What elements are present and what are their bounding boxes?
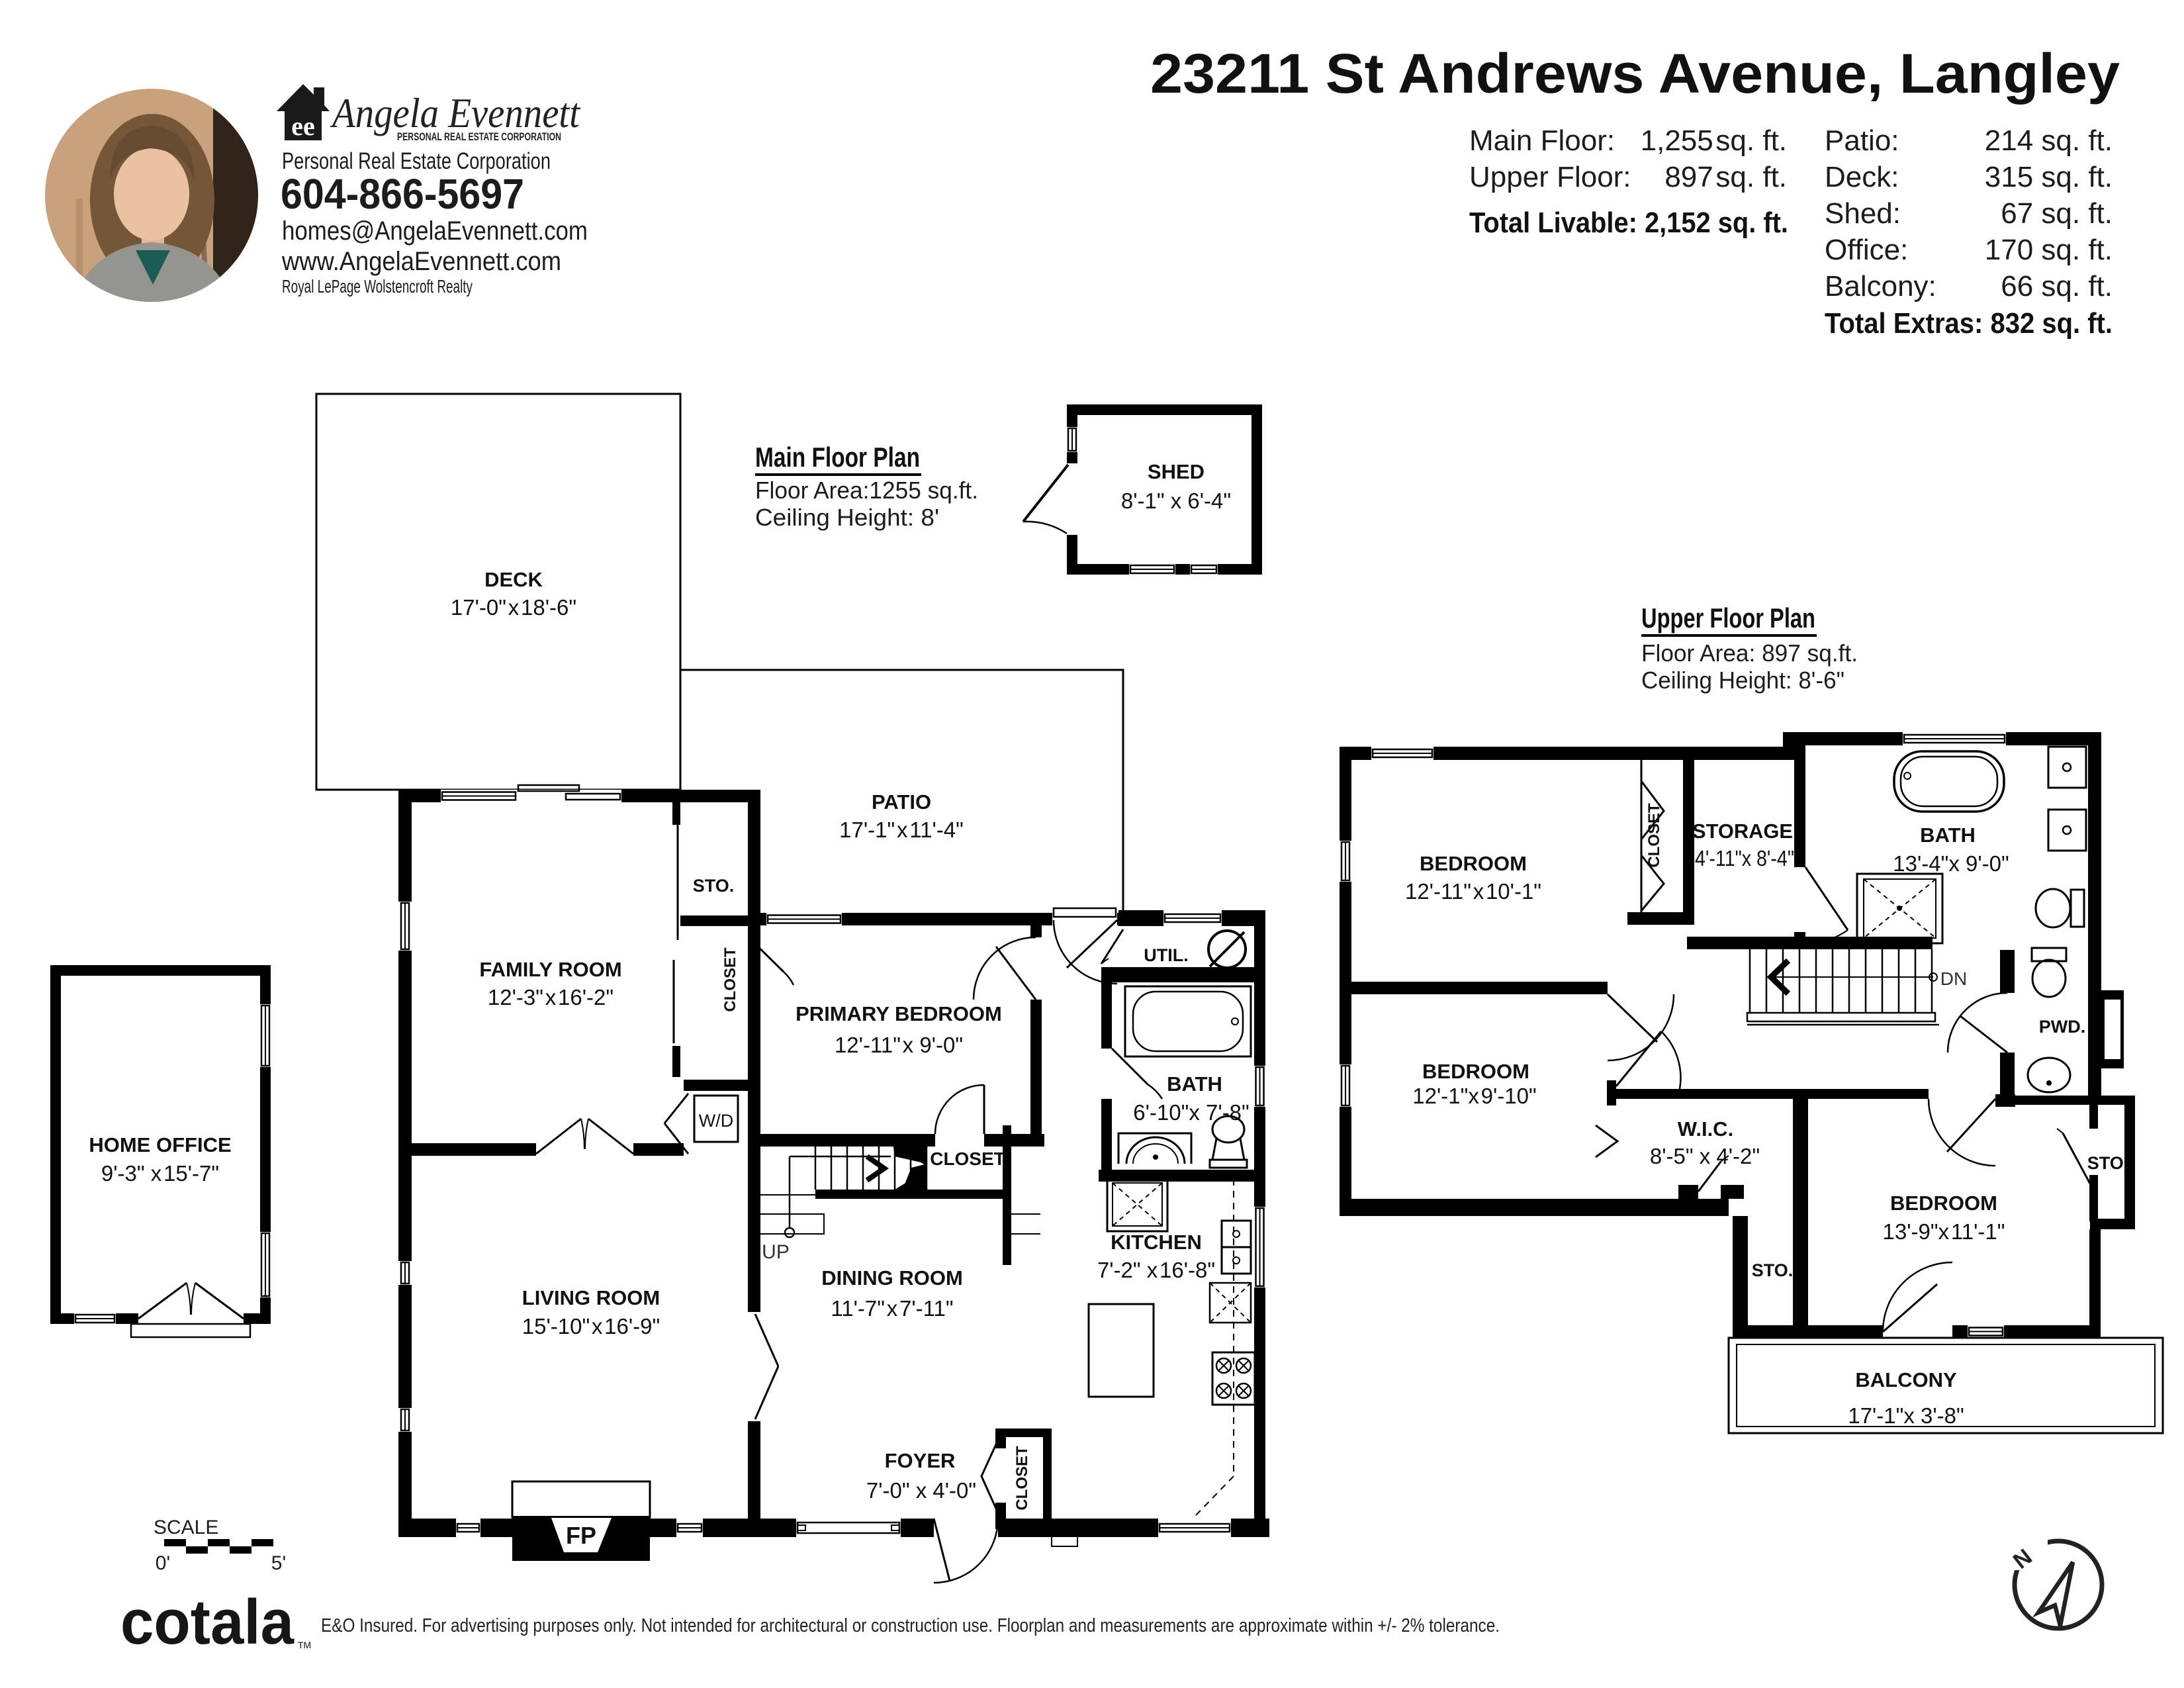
svg-text:SHED: SHED	[1148, 460, 1205, 483]
svg-text:Upper Floor Plan: Upper Floor Plan	[1641, 602, 1815, 633]
svg-text:12'-11" x 9'-0": 12'-11" x 9'-0"	[835, 1033, 963, 1057]
svg-text:Ceiling Height: 8'-6": Ceiling Height: 8'-6"	[1641, 667, 1844, 694]
svg-text:UP: UP	[762, 1241, 790, 1263]
svg-text:Balcony:: Balcony:	[1825, 270, 1936, 303]
svg-text:STO.: STO.	[693, 876, 735, 896]
svg-text:PRIMARY BEDROOM: PRIMARY BEDROOM	[796, 1002, 1002, 1025]
svg-text:ee: ee	[291, 111, 315, 141]
svg-text:Office:: Office:	[1825, 234, 1908, 266]
svg-text:170 sq. ft.: 170 sq. ft.	[1985, 234, 2113, 266]
svg-text:BATH: BATH	[1920, 823, 1976, 847]
svg-text:17'-1"x 3'-8": 17'-1"x 3'-8"	[1848, 1403, 1964, 1428]
svg-text:Total Livable: 2,152 sq. ft.: Total Livable: 2,152 sq. ft.	[1469, 207, 1788, 239]
svg-text:FOYER: FOYER	[885, 1449, 956, 1472]
svg-text:KITCHEN: KITCHEN	[1111, 1231, 1202, 1254]
svg-text:cotala: cotala	[120, 1587, 295, 1658]
svg-text:Total Extras: 832 sq. ft.: Total Extras: 832 sq. ft.	[1825, 307, 2113, 340]
svg-text:CLOSET: CLOSET	[1013, 1446, 1031, 1511]
svg-text:DINING ROOM: DINING ROOM	[821, 1266, 963, 1289]
svg-text:STO.: STO.	[2087, 1153, 2129, 1173]
svg-text:0': 0'	[156, 1552, 170, 1574]
svg-text:17'-0" x 18'-6": 17'-0" x 18'-6"	[451, 595, 576, 620]
svg-text:UTIL.: UTIL.	[1144, 945, 1189, 965]
svg-text:CLOSET: CLOSET	[930, 1149, 1005, 1169]
svg-text:BALCONY: BALCONY	[1855, 1368, 1957, 1391]
svg-text:Main Floor:: Main Floor:	[1469, 124, 1615, 157]
svg-text:PERSONAL REAL ESTATE CORPORATI: PERSONAL REAL ESTATE CORPORATION	[397, 130, 561, 143]
svg-text:Main Floor Plan: Main Floor Plan	[755, 442, 920, 473]
svg-text:BEDROOM: BEDROOM	[1422, 1060, 1529, 1083]
svg-text:Floor Area:1255 sq.ft.: Floor Area:1255 sq.ft.	[755, 477, 978, 504]
svg-text:LIVING ROOM: LIVING ROOM	[522, 1286, 660, 1309]
svg-text:8'-5" x 4'-2": 8'-5" x 4'-2"	[1650, 1144, 1760, 1168]
svg-text:214 sq. ft.: 214 sq. ft.	[1985, 124, 2113, 157]
svg-text:www.AngelaEvennett.com: www.AngelaEvennett.com	[281, 247, 561, 276]
svg-text:17'-1" x 11'-4": 17'-1" x 11'-4"	[839, 818, 964, 842]
svg-text:1,255 sq. ft.: 1,255 sq. ft.	[1641, 124, 1787, 157]
svg-text:SCALE: SCALE	[154, 1517, 218, 1538]
svg-text:604-866-5697: 604-866-5697	[281, 170, 524, 218]
svg-text:Deck:: Deck:	[1825, 161, 1899, 193]
svg-text:W.I.C.: W.I.C.	[1678, 1117, 1733, 1141]
svg-text:STO.: STO.	[1752, 1260, 1794, 1280]
svg-text:FP: FP	[566, 1522, 596, 1549]
svg-text:homes@AngelaEvennett.com: homes@AngelaEvennett.com	[282, 216, 588, 246]
svg-text:6'-10"x 7'-8": 6'-10"x 7'-8"	[1133, 1100, 1249, 1125]
svg-text:15'-10" x 16'-9": 15'-10" x 16'-9"	[522, 1314, 660, 1338]
svg-text:67 sq. ft.: 67 sq. ft.	[2001, 197, 2113, 230]
svg-text:BEDROOM: BEDROOM	[1890, 1192, 1997, 1215]
svg-text:13'-4"x 9'-0": 13'-4"x 9'-0"	[1893, 851, 2009, 876]
svg-text:Royal LePage Wolstencroft Real: Royal LePage Wolstencroft Realty	[282, 276, 473, 297]
svg-text:BATH: BATH	[1167, 1072, 1222, 1096]
svg-text:CLOSET: CLOSET	[1645, 803, 1663, 868]
svg-text:Upper Floor:: Upper Floor:	[1469, 161, 1631, 193]
svg-text:TM: TM	[298, 1640, 311, 1650]
svg-text:DECK: DECK	[484, 568, 543, 591]
svg-text:Patio:: Patio:	[1825, 124, 1899, 157]
svg-text:11'-7" x 7'-11": 11'-7" x 7'-11"	[831, 1296, 953, 1321]
svg-text:HOME OFFICE: HOME OFFICE	[89, 1133, 231, 1156]
svg-text:PWD.: PWD.	[2039, 1017, 2086, 1037]
svg-text:PATIO: PATIO	[872, 790, 931, 814]
svg-text:E&O Insured. For advertising p: E&O Insured. For advertising purposes on…	[321, 1615, 1500, 1636]
svg-text:7'-2" x 16'-8": 7'-2" x 16'-8"	[1097, 1258, 1215, 1282]
svg-text:7'-0" x 4'-0": 7'-0" x 4'-0"	[866, 1478, 976, 1503]
svg-text:9'-3" x 15'-7": 9'-3" x 15'-7"	[101, 1161, 219, 1186]
svg-text:Floor Area: 897 sq.ft.: Floor Area: 897 sq.ft.	[1641, 639, 1858, 667]
svg-text:13'-9"x 11'-1": 13'-9"x 11'-1"	[1883, 1219, 2005, 1244]
svg-text:12'-1"x 9'-10": 12'-1"x 9'-10"	[1412, 1084, 1536, 1108]
svg-text:Shed:: Shed:	[1825, 197, 1901, 230]
svg-text:12'-11" x 10'-1": 12'-11" x 10'-1"	[1405, 879, 1541, 904]
svg-text:897 sq. ft.: 897 sq. ft.	[1664, 161, 1787, 193]
svg-text:DN: DN	[1940, 968, 1967, 989]
svg-text:315 sq. ft.: 315 sq. ft.	[1985, 161, 2113, 193]
svg-text:BEDROOM: BEDROOM	[1420, 852, 1527, 875]
svg-text:Angela Evennett: Angela Evennett	[330, 89, 581, 136]
svg-text:8'-1" x 6'-4": 8'-1" x 6'-4"	[1121, 489, 1231, 513]
svg-text:23211 St Andrews Avenue, Langl: 23211 St Andrews Avenue, Langley	[1150, 42, 2120, 105]
svg-text:66 sq. ft.: 66 sq. ft.	[2001, 270, 2113, 303]
svg-text:5': 5'	[271, 1552, 286, 1574]
svg-text:W/D: W/D	[699, 1111, 733, 1131]
svg-text:12'-3" x 16'-2": 12'-3" x 16'-2"	[488, 985, 614, 1009]
svg-text:CLOSET: CLOSET	[721, 947, 739, 1012]
svg-text:STORAGE: STORAGE	[1692, 820, 1793, 843]
svg-text:Ceiling Height: 8': Ceiling Height: 8'	[755, 504, 939, 531]
svg-text:4'-11"x 8'-4": 4'-11"x 8'-4"	[1695, 846, 1794, 870]
svg-text:FAMILY ROOM: FAMILY ROOM	[479, 958, 621, 981]
